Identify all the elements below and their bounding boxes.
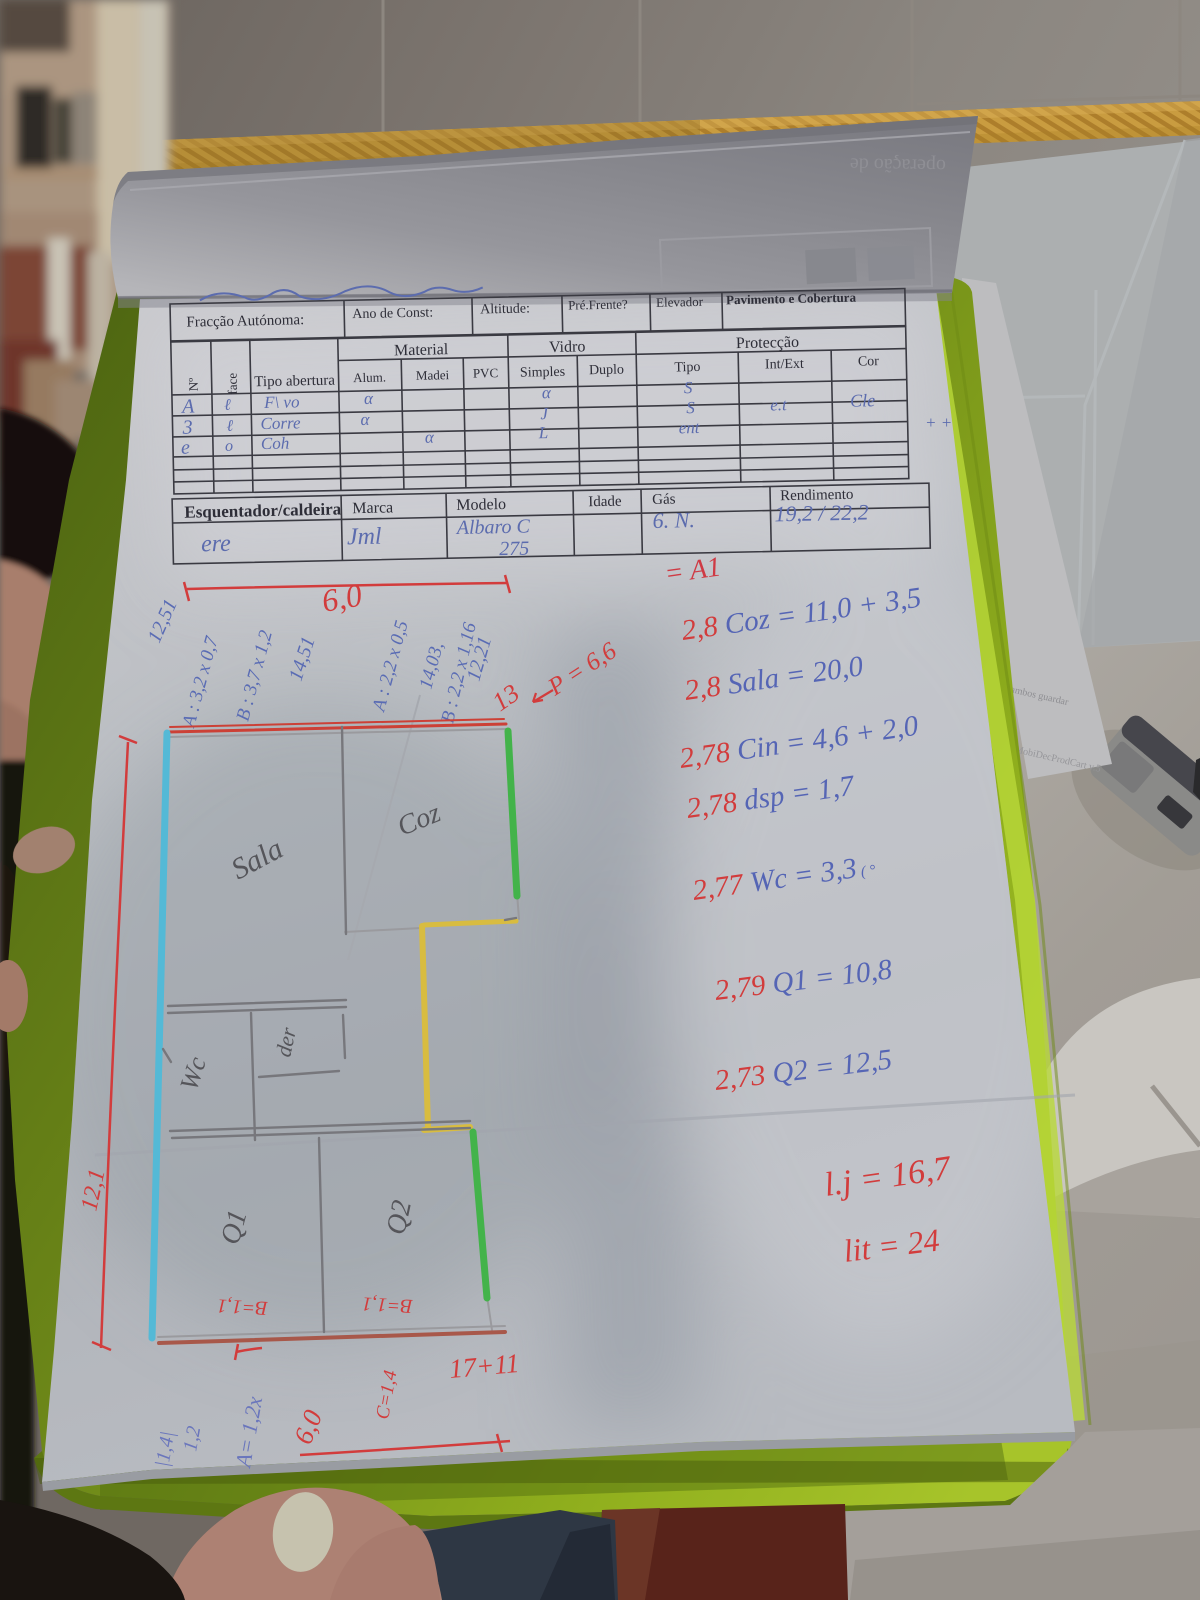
svg-text:ent: ent <box>679 418 701 437</box>
svg-text:α: α <box>360 410 370 429</box>
svg-text:Protecção: Protecção <box>736 334 799 352</box>
svg-text:L: L <box>538 423 549 442</box>
svg-text:B=1,1: B=1,1 <box>361 1292 413 1317</box>
svg-text:Nº: Nº <box>186 378 201 392</box>
svg-text:F\ vo: F\ vo <box>263 392 300 412</box>
svg-text:Marca: Marca <box>352 499 393 517</box>
svg-text:6,0: 6,0 <box>319 576 365 618</box>
svg-text:Cor: Cor <box>858 354 880 369</box>
svg-text:S⁢: S⁢ <box>684 378 693 397</box>
svg-text:17+11: 17+11 <box>448 1348 521 1384</box>
svg-text:ℓ: ℓ <box>226 418 233 435</box>
svg-text:Simples: Simples <box>520 365 565 381</box>
svg-text:+ +: + + <box>925 413 952 432</box>
svg-text:Tipo abertura: Tipo abertura <box>254 373 335 391</box>
svg-text:6. N.: 6. N. <box>652 507 695 533</box>
svg-text:Gás: Gás <box>652 491 676 507</box>
svg-text:A: A <box>180 395 195 417</box>
svg-text:S: S <box>686 398 695 417</box>
svg-text:19,2 / 22,2: 19,2 / 22,2 <box>774 499 869 526</box>
svg-text:Corre: Corre <box>260 413 301 433</box>
svg-text:α: α <box>425 427 435 446</box>
svg-text:Pré.Frente?: Pré.Frente? <box>568 296 628 312</box>
svg-text:Albaro C: Albaro C <box>455 516 531 540</box>
svg-text:ℓ: ℓ <box>224 397 231 414</box>
svg-text:Fracção Autónoma:: Fracção Autónoma: <box>186 312 304 330</box>
svg-text:Int/Ext: Int/Ext <box>765 357 804 373</box>
svg-text:Alum.: Alum. <box>353 369 386 385</box>
svg-text:B=1,1: B=1,1 <box>216 1294 268 1319</box>
svg-text:α: α <box>542 383 552 402</box>
svg-text:275: 275 <box>499 538 529 561</box>
svg-text:Esquentador/caldeira: Esquentador/caldeira <box>184 499 342 521</box>
svg-text:Jml: Jml <box>347 524 383 551</box>
svg-text:operação de: operação de <box>850 153 947 177</box>
svg-text:Coh: Coh <box>261 434 290 454</box>
svg-text:α: α <box>364 389 374 408</box>
svg-text:Altitude:: Altitude: <box>480 301 530 317</box>
svg-text:face: face <box>224 373 239 395</box>
svg-text:Cle: Cle <box>850 390 875 411</box>
svg-text:Tipo: Tipo <box>674 360 700 376</box>
svg-text:Ano de Const:: Ano de Const: <box>352 305 433 322</box>
svg-text:PVC: PVC <box>473 365 499 381</box>
svg-text:Idade: Idade <box>588 494 622 511</box>
svg-text:Elevador: Elevador <box>656 294 704 310</box>
svg-text:e: e <box>181 437 190 459</box>
svg-text:3: 3 <box>181 417 192 439</box>
svg-text:e.t: e.t <box>770 395 788 414</box>
svg-text:1,2: 1,2 <box>179 1424 205 1452</box>
svg-text:Duplo: Duplo <box>589 363 624 379</box>
svg-text:Vidro: Vidro <box>549 338 586 356</box>
svg-text:Pavimento e Cobertura: Pavimento e Cobertura <box>726 290 857 308</box>
svg-text:ere: ere <box>201 531 232 558</box>
svg-text:o: o <box>225 438 233 455</box>
svg-text:Modelo: Modelo <box>456 496 506 514</box>
svg-text:Material: Material <box>394 341 449 359</box>
svg-text:Madei: Madei <box>416 367 450 383</box>
